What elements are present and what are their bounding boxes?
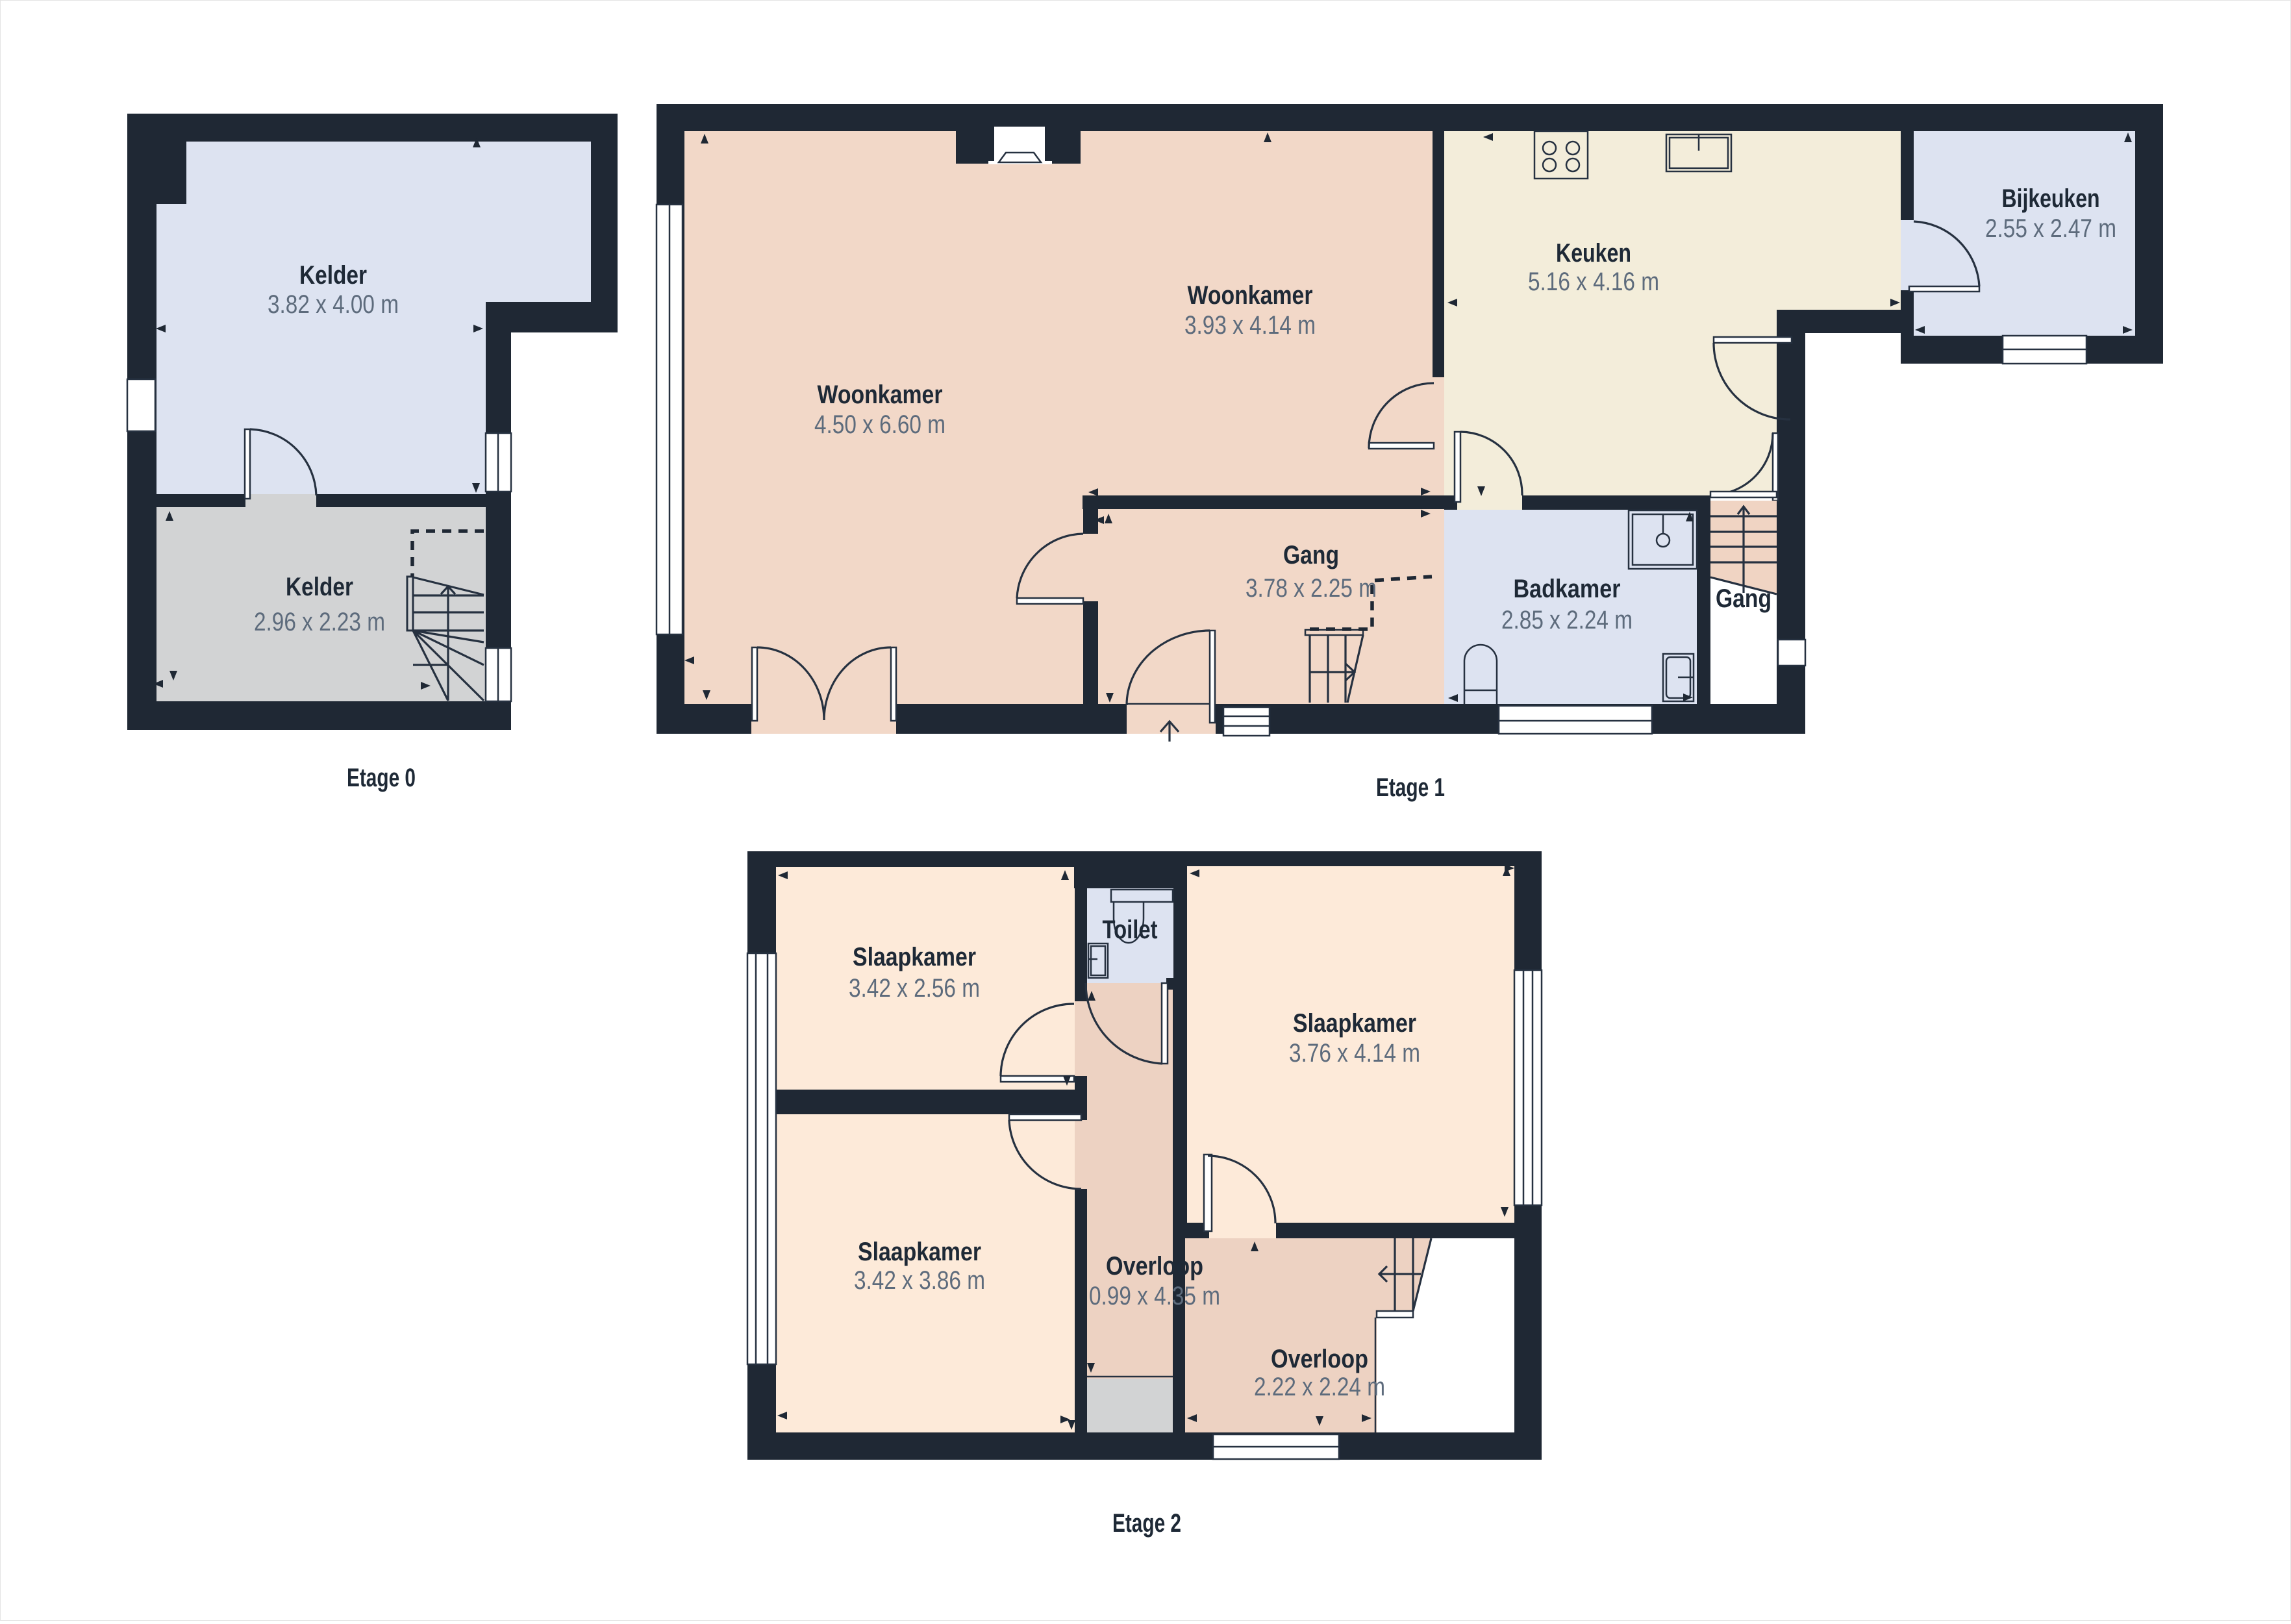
svg-text:2.55 x 2.47 m: 2.55 x 2.47 m xyxy=(1985,214,2116,243)
svg-text:3.78 x 2.25 m: 3.78 x 2.25 m xyxy=(1246,574,1377,603)
svg-text:3.42 x 2.56 m: 3.42 x 2.56 m xyxy=(849,974,980,1003)
svg-text:Slaapkamer: Slaapkamer xyxy=(858,1238,981,1266)
svg-text:3.82 x 4.00 m: 3.82 x 4.00 m xyxy=(268,290,399,319)
svg-text:Gang: Gang xyxy=(1716,584,1771,613)
svg-text:Badkamer: Badkamer xyxy=(1514,575,1621,603)
svg-text:Bijkeuken: Bijkeuken xyxy=(2002,184,2100,213)
svg-text:Gang: Gang xyxy=(1283,541,1339,569)
svg-text:Woonkamer: Woonkamer xyxy=(818,381,943,409)
svg-text:5.16 x 4.16 m: 5.16 x 4.16 m xyxy=(1528,268,1659,296)
svg-text:2.96 x 2.23 m: 2.96 x 2.23 m xyxy=(254,608,385,636)
svg-text:Overloop: Overloop xyxy=(1106,1252,1203,1280)
svg-text:Slaapkamer: Slaapkamer xyxy=(853,943,976,971)
svg-text:Overloop: Overloop xyxy=(1271,1345,1368,1373)
svg-text:3.76 x 4.14 m: 3.76 x 4.14 m xyxy=(1289,1039,1420,1068)
svg-text:Kelder: Kelder xyxy=(286,573,353,601)
svg-text:4.50 x 6.60 m: 4.50 x 6.60 m xyxy=(814,410,945,439)
svg-text:3.42 x 3.86 m: 3.42 x 3.86 m xyxy=(854,1266,985,1295)
svg-text:Slaapkamer: Slaapkamer xyxy=(1293,1009,1416,1038)
svg-text:Etage 1: Etage 1 xyxy=(1376,773,1445,802)
svg-text:0.99 x 4.35 m: 0.99 x 4.35 m xyxy=(1089,1282,1220,1310)
svg-text:Woonkamer: Woonkamer xyxy=(1188,281,1313,310)
svg-text:Keuken: Keuken xyxy=(1556,239,1631,268)
svg-text:Etage 0: Etage 0 xyxy=(347,764,416,792)
svg-text:2.85 x 2.24 m: 2.85 x 2.24 m xyxy=(1501,606,1633,634)
svg-text:2.22 x 2.24 m: 2.22 x 2.24 m xyxy=(1254,1373,1385,1401)
svg-text:Etage 2: Etage 2 xyxy=(1112,1509,1181,1538)
svg-text:Kelder: Kelder xyxy=(299,261,367,290)
svg-text:3.93 x 4.14 m: 3.93 x 4.14 m xyxy=(1184,311,1316,340)
svg-text:Toilet: Toilet xyxy=(1103,916,1158,944)
